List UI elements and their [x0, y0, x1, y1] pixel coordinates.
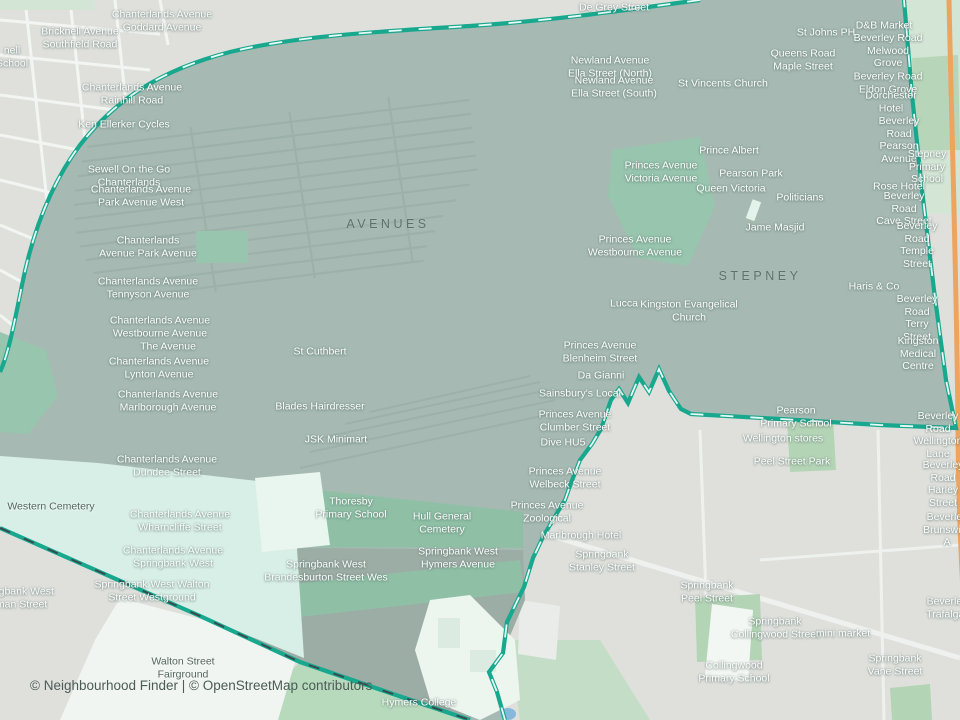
map-label: Princes Avenue Zoological	[511, 499, 584, 524]
map-label: Haris & Co	[849, 281, 900, 294]
map-label: Marlbrough Hotel	[541, 530, 622, 543]
map-label: Chanterlands Avenue Goddard Avenue	[112, 8, 212, 33]
map-label: mini market	[816, 628, 870, 641]
map-label: Queens Road Maple Street	[771, 47, 836, 72]
map-label: Princes Avenue Victoria Avenue	[625, 159, 698, 184]
map-label: Chanterlands Avenue Wharncliffe Street	[130, 508, 230, 533]
map-label: Lucca	[610, 298, 638, 311]
map-label: Hull General Cemetery	[413, 510, 471, 535]
map-label: Ken Ellerker Cycles	[78, 119, 170, 132]
map-label: Springbank Peel Street	[680, 579, 733, 604]
map-label: De Grey Street	[579, 2, 649, 15]
map-label: Kingston Medical Centre	[897, 335, 939, 373]
map-label: Princes Avenue Westbourne Avenue	[588, 233, 682, 258]
map-label: Chanterlands Avenue Springbank West	[123, 544, 223, 569]
map-label: Chanterlands Avenue Dundee Street	[117, 453, 217, 478]
map-label: Beverley Brunswick A	[923, 511, 960, 549]
map-label: St Vincents Church	[678, 78, 768, 91]
map-label: nell School	[0, 44, 28, 69]
map-label: Sainsbury's Local	[539, 388, 621, 401]
map-label: Western Cemetery	[7, 501, 94, 514]
map-label: Prince Albert	[699, 145, 759, 158]
map-label: Chanterlands Avenue Park Avenue West	[91, 183, 191, 208]
map-label: Jame Masjid	[746, 222, 805, 235]
map-label: Hymers College	[382, 697, 457, 710]
map-label: Beverley Trafalgar	[926, 595, 960, 620]
map-label: Blades Hairdresser	[275, 401, 364, 414]
map-label: Dorchester Hotel	[857, 89, 926, 114]
map-label: Walton Street Fairground	[151, 655, 214, 680]
map-label: Stepney Primary School	[908, 148, 947, 186]
map-label: Chanterlands Avenue Rainhill Road	[82, 81, 182, 106]
map-label: Dive HU5	[541, 437, 586, 450]
map-label: Pearson Primary School	[760, 404, 831, 429]
map-label: St Johns PH	[797, 27, 855, 40]
map-label: Springbank West Hymers Avenue	[418, 545, 498, 570]
map-label: JSK Minimart	[305, 434, 367, 447]
map-label: Springbank West Pulman Street	[0, 585, 54, 610]
map-label: Princes Avenue Clumber Street	[539, 408, 612, 433]
attribution: © Neighbourhood Finder | © OpenStreetMap…	[30, 678, 372, 693]
map-label: Beverley Road Terry Street	[896, 293, 939, 343]
map-label: Collingwood Primary School	[698, 659, 769, 684]
map-label: Politicians	[776, 192, 823, 205]
map-label: Princes Avenue Blenheim Street	[563, 339, 638, 364]
map-label: Pearson Park	[719, 168, 783, 181]
map-label: Springbank West Brandesburton Street Wes	[264, 558, 388, 583]
map-label: Springbank Vane Street	[868, 652, 923, 677]
region-label: AVENUES	[346, 217, 429, 231]
map-viewport[interactable]: De Grey StreetChanterlands Avenue Goddar…	[0, 0, 960, 720]
map-label: Chanterlands Avenue Tennyson Avenue	[98, 275, 198, 300]
map-label: Thoresby Primary School	[315, 495, 386, 520]
map-label: Springbank Stanley Street	[569, 548, 635, 573]
map-label: Bricknell Avenue Southfield Road	[41, 25, 118, 50]
map-label: Wellington stores	[743, 433, 823, 446]
map-label: Sewell On the Go Chanterlands	[88, 163, 170, 188]
map-label: Peel Street Park	[754, 456, 830, 469]
map-label: Newland Avenue Ella Street (North)	[568, 54, 652, 79]
map-label: The Avenue	[140, 341, 196, 354]
map-label: Kingston Evangelical Church	[640, 298, 737, 323]
map-label: Newland Avenue Ella Street (South)	[571, 74, 657, 99]
map-label: Princes Avenue Welbeck Street	[529, 465, 602, 490]
map-label: Chanterlands Avenue Westbourne Avenue	[110, 314, 210, 339]
map-label: D&B Market	[856, 20, 913, 33]
map-label: Chanterlands Avenue Marlborough Avenue	[118, 388, 218, 413]
map-label: Beverley Road Wellington Lane	[914, 410, 960, 460]
map-label: Chanterlands Avenue Lynton Avenue	[109, 355, 209, 380]
map-label: Beverley Road Harley Street	[923, 459, 960, 509]
map-label: Springbank West Walton Street Westground	[95, 578, 210, 603]
map-label: Beverley Road Eldon Grove	[854, 70, 923, 95]
map-label: Beverley Road Temple Street	[896, 220, 939, 270]
map-label: Beverley Road Pearson Avenue	[869, 115, 930, 165]
map-label: St Cuthbert	[293, 346, 346, 359]
map-label: Queen Victoria	[696, 183, 765, 196]
region-label: STEPNEY	[719, 269, 802, 283]
map-label: Chanterlands Avenue Park Avenue	[99, 234, 197, 259]
map-label: Springbank Collingwood Street	[731, 615, 819, 640]
map-label: Beverley Road Melwood Grove	[852, 32, 924, 70]
map-label: Beverley Road Cave Street	[876, 190, 932, 228]
map-label: Da Gianni	[578, 370, 625, 383]
map-label: Rose Hotel	[873, 181, 925, 194]
labels-layer: De Grey StreetChanterlands Avenue Goddar…	[0, 0, 960, 720]
